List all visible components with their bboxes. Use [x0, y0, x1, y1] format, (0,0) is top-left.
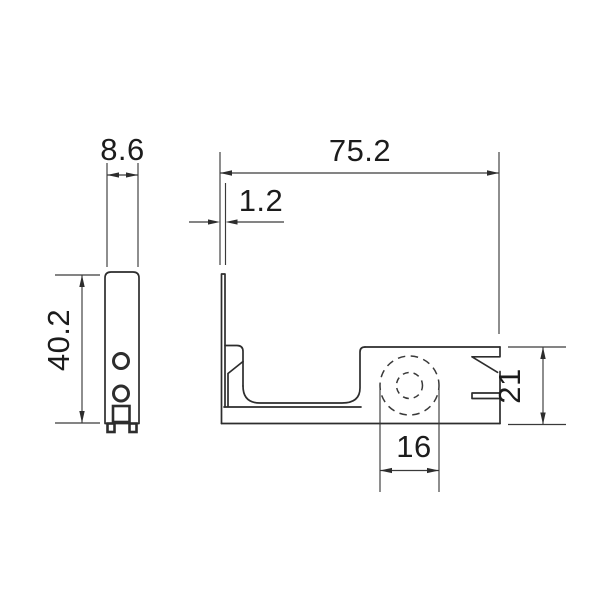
- dim-label-wall-thickness: 1.2: [239, 183, 284, 218]
- thin-wall: [222, 274, 226, 424]
- dim-label-overall-height: 40.2: [41, 309, 76, 371]
- dim-label-block-height: 21: [492, 368, 527, 403]
- dimension-overall-width: 75.2: [220, 133, 499, 334]
- roller-hidden-circle-inner: [397, 373, 423, 399]
- arrowhead-left: [380, 468, 392, 473]
- arrowhead-top: [79, 275, 84, 287]
- technical-drawing-canvas: 8.6 75.2 1.2 40.2 21 16: [0, 0, 600, 600]
- dimension-plate-width: 8.6: [100, 132, 145, 267]
- arrowhead-right: [427, 468, 439, 473]
- side-view-square-socket: [113, 406, 130, 422]
- arrowhead-right: [126, 172, 138, 177]
- arrowhead-left: [220, 170, 232, 175]
- channel-floor: [243, 347, 365, 403]
- side-view-foot-right: [130, 424, 137, 433]
- dim-label-plate-width: 8.6: [100, 132, 145, 167]
- arrowhead-pointing-left: [226, 219, 238, 224]
- arrowhead-left: [107, 172, 119, 177]
- dimension-overall-height: 40.2: [41, 275, 100, 423]
- front-view: [222, 274, 501, 424]
- extension-lines: [220, 152, 499, 334]
- dimension-roller-width: 16: [380, 389, 439, 492]
- dimension-block-height: 21: [492, 347, 566, 425]
- inner-pocket: [228, 362, 243, 407]
- dimension-wall-thickness: 1.2: [189, 183, 284, 265]
- arrowhead-bottom: [79, 411, 84, 423]
- side-view: [105, 272, 139, 432]
- drawing-svg: 8.6 75.2 1.2 40.2 21 16: [0, 0, 600, 600]
- roller-hidden-circle-outer: [380, 356, 439, 415]
- arrowhead-pointing-right: [208, 219, 220, 224]
- arrowhead-bottom: [540, 413, 545, 425]
- arrowhead-top: [540, 347, 545, 359]
- extension-lines: [107, 163, 138, 267]
- side-view-foot-left: [108, 424, 115, 433]
- dim-label-overall-width: 75.2: [329, 133, 391, 168]
- dim-label-roller-width: 16: [396, 429, 431, 464]
- arrowhead-right: [487, 170, 499, 175]
